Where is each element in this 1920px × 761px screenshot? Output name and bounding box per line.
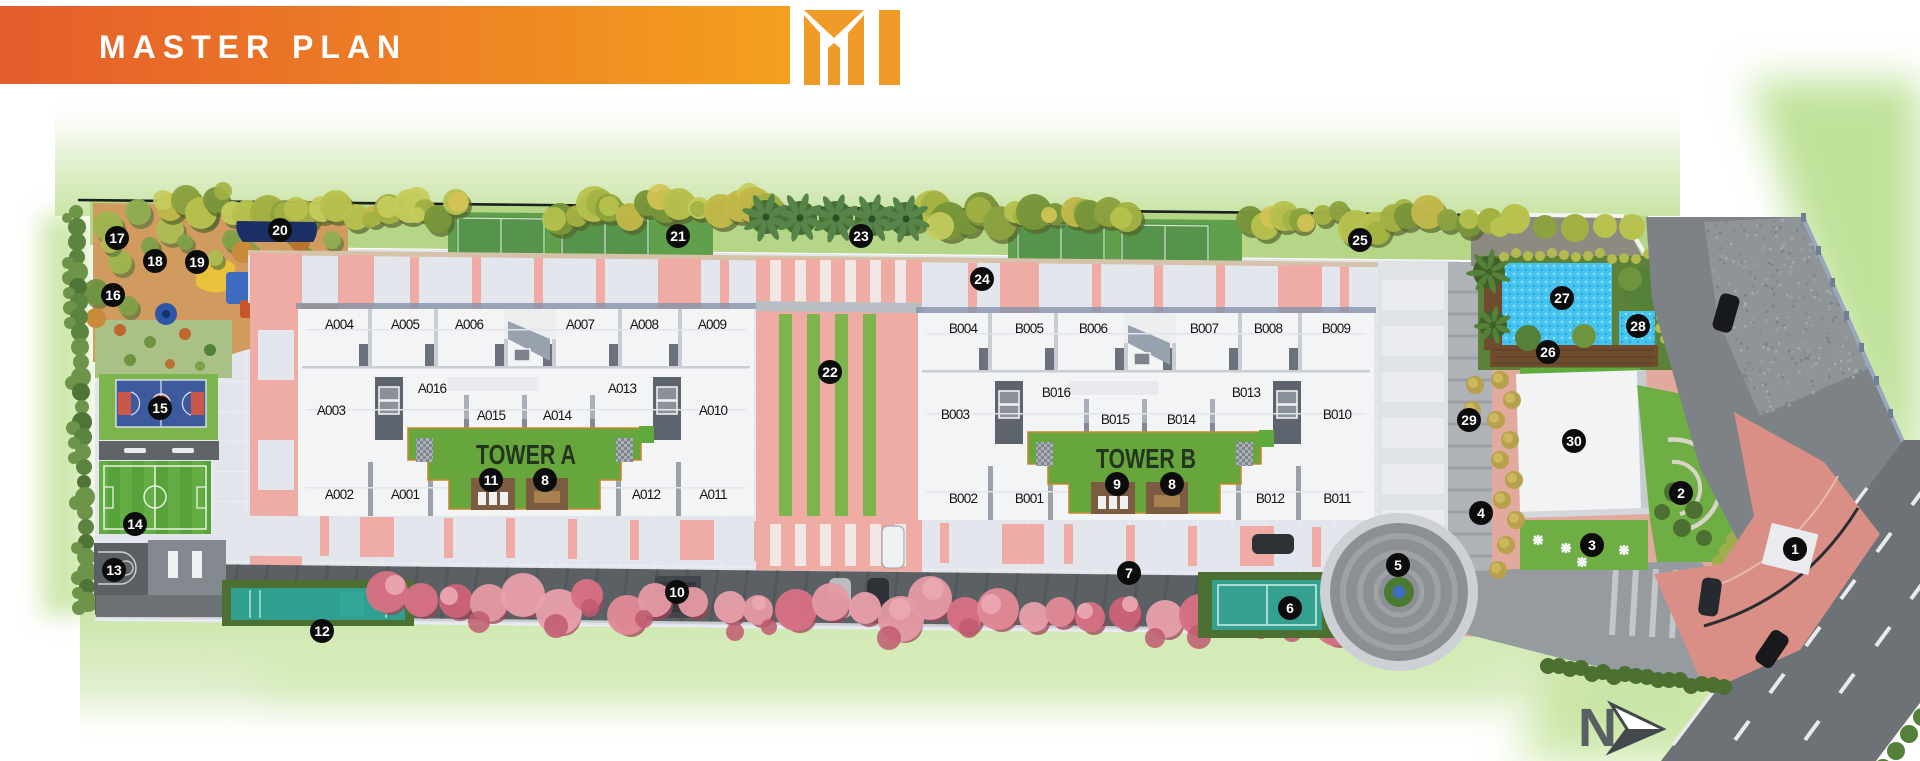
svg-text:25: 25 bbox=[1352, 232, 1368, 248]
svg-text:2: 2 bbox=[1677, 485, 1685, 501]
svg-text:B006: B006 bbox=[1079, 321, 1108, 336]
svg-text:19: 19 bbox=[189, 254, 205, 270]
svg-text:20: 20 bbox=[272, 222, 288, 238]
svg-text:A004: A004 bbox=[325, 317, 355, 332]
svg-text:B002: B002 bbox=[949, 491, 978, 506]
svg-text:A007: A007 bbox=[566, 317, 595, 332]
svg-text:22: 22 bbox=[822, 364, 838, 380]
svg-text:B005: B005 bbox=[1015, 321, 1044, 336]
svg-text:B001: B001 bbox=[1015, 491, 1044, 506]
svg-text:A013: A013 bbox=[608, 381, 637, 396]
svg-text:B008: B008 bbox=[1254, 321, 1283, 336]
svg-text:A005: A005 bbox=[391, 317, 420, 332]
svg-text:5: 5 bbox=[1394, 557, 1402, 573]
svg-text:TOWER A: TOWER A bbox=[476, 439, 576, 470]
svg-text:B015: B015 bbox=[1101, 412, 1130, 427]
svg-text:B003: B003 bbox=[941, 407, 970, 422]
svg-text:27: 27 bbox=[1554, 290, 1570, 306]
svg-text:13: 13 bbox=[106, 562, 122, 578]
svg-text:15: 15 bbox=[152, 400, 168, 416]
svg-text:28: 28 bbox=[1630, 318, 1646, 334]
svg-text:24: 24 bbox=[974, 271, 990, 287]
svg-text:B013: B013 bbox=[1232, 385, 1261, 400]
svg-text:B009: B009 bbox=[1322, 321, 1351, 336]
svg-text:30: 30 bbox=[1566, 433, 1582, 449]
svg-text:B004: B004 bbox=[949, 321, 979, 336]
svg-text:10: 10 bbox=[669, 584, 685, 600]
svg-text:21: 21 bbox=[670, 228, 686, 244]
svg-text:TOWER B: TOWER B bbox=[1096, 443, 1196, 474]
svg-text:B007: B007 bbox=[1190, 321, 1219, 336]
svg-text:A001: A001 bbox=[391, 487, 420, 502]
svg-text:A010: A010 bbox=[699, 403, 728, 418]
svg-text:16: 16 bbox=[105, 287, 121, 303]
svg-text:A016: A016 bbox=[418, 381, 447, 396]
svg-text:29: 29 bbox=[1461, 412, 1477, 428]
svg-text:A006: A006 bbox=[455, 317, 484, 332]
svg-text:A008: A008 bbox=[630, 317, 659, 332]
svg-text:18: 18 bbox=[147, 253, 163, 269]
svg-text:14: 14 bbox=[127, 516, 143, 532]
svg-text:A015: A015 bbox=[477, 408, 506, 423]
svg-text:B016: B016 bbox=[1042, 385, 1071, 400]
svg-text:MASTER PLAN: MASTER PLAN bbox=[99, 29, 407, 65]
svg-text:B011: B011 bbox=[1323, 491, 1351, 506]
svg-text:A009: A009 bbox=[698, 317, 727, 332]
svg-text:23: 23 bbox=[853, 228, 869, 244]
svg-text:A012: A012 bbox=[632, 487, 661, 502]
svg-text:B014: B014 bbox=[1167, 412, 1197, 427]
svg-text:4: 4 bbox=[1477, 505, 1485, 521]
svg-text:1: 1 bbox=[1791, 541, 1799, 557]
svg-text:26: 26 bbox=[1540, 344, 1556, 360]
svg-text:11: 11 bbox=[484, 472, 499, 488]
svg-text:12: 12 bbox=[314, 623, 330, 639]
svg-text:9: 9 bbox=[1113, 476, 1121, 492]
svg-text:B010: B010 bbox=[1323, 407, 1352, 422]
svg-text:17: 17 bbox=[109, 230, 125, 246]
svg-text:A014: A014 bbox=[543, 408, 573, 423]
svg-text:7: 7 bbox=[1125, 565, 1133, 581]
svg-text:A002: A002 bbox=[325, 487, 354, 502]
svg-text:6: 6 bbox=[1286, 600, 1294, 616]
svg-text:A003: A003 bbox=[317, 403, 346, 418]
svg-text:3: 3 bbox=[1588, 537, 1596, 553]
svg-text:8: 8 bbox=[1168, 476, 1176, 492]
svg-text:B012: B012 bbox=[1256, 491, 1285, 506]
svg-text:8: 8 bbox=[541, 472, 549, 488]
svg-text:A011: A011 bbox=[699, 487, 727, 502]
